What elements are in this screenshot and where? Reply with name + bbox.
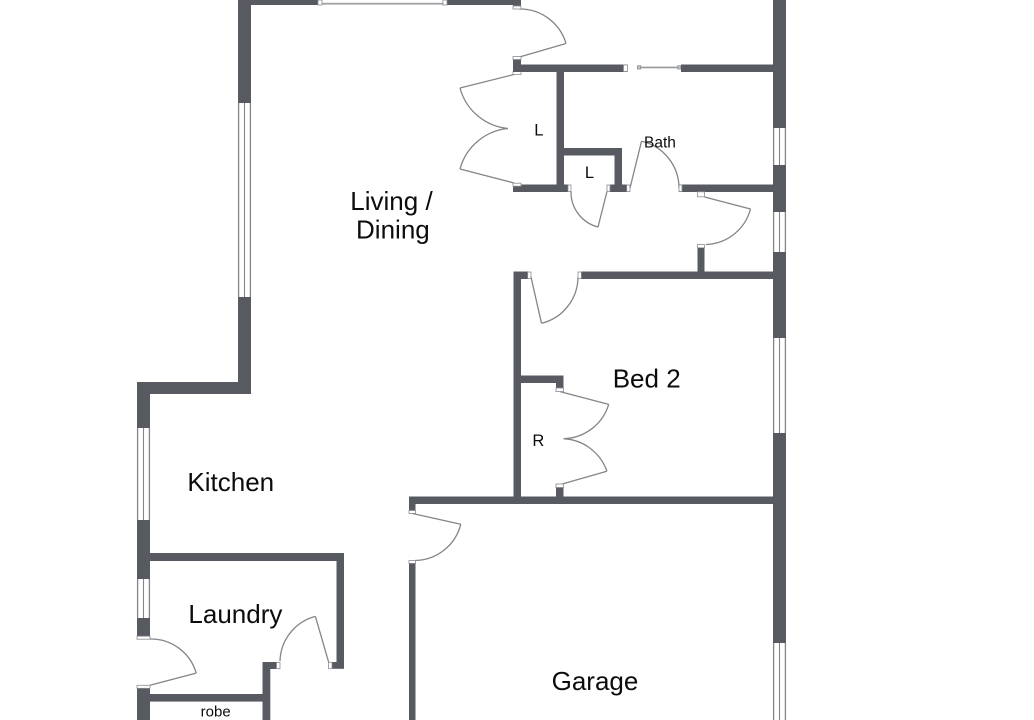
svg-text:robe: robe (201, 704, 231, 720)
svg-text:L: L (534, 121, 543, 139)
svg-text:Bath: Bath (644, 134, 676, 151)
svg-text:Laundry: Laundry (188, 599, 282, 629)
svg-text:Living /: Living / (350, 186, 433, 216)
svg-text:R: R (532, 432, 544, 450)
svg-text:L: L (585, 164, 594, 182)
svg-text:Kitchen: Kitchen (187, 467, 274, 497)
svg-text:Dining: Dining (356, 215, 430, 245)
svg-text:Garage: Garage (552, 666, 639, 696)
svg-text:Bed 2: Bed 2 (613, 364, 681, 394)
